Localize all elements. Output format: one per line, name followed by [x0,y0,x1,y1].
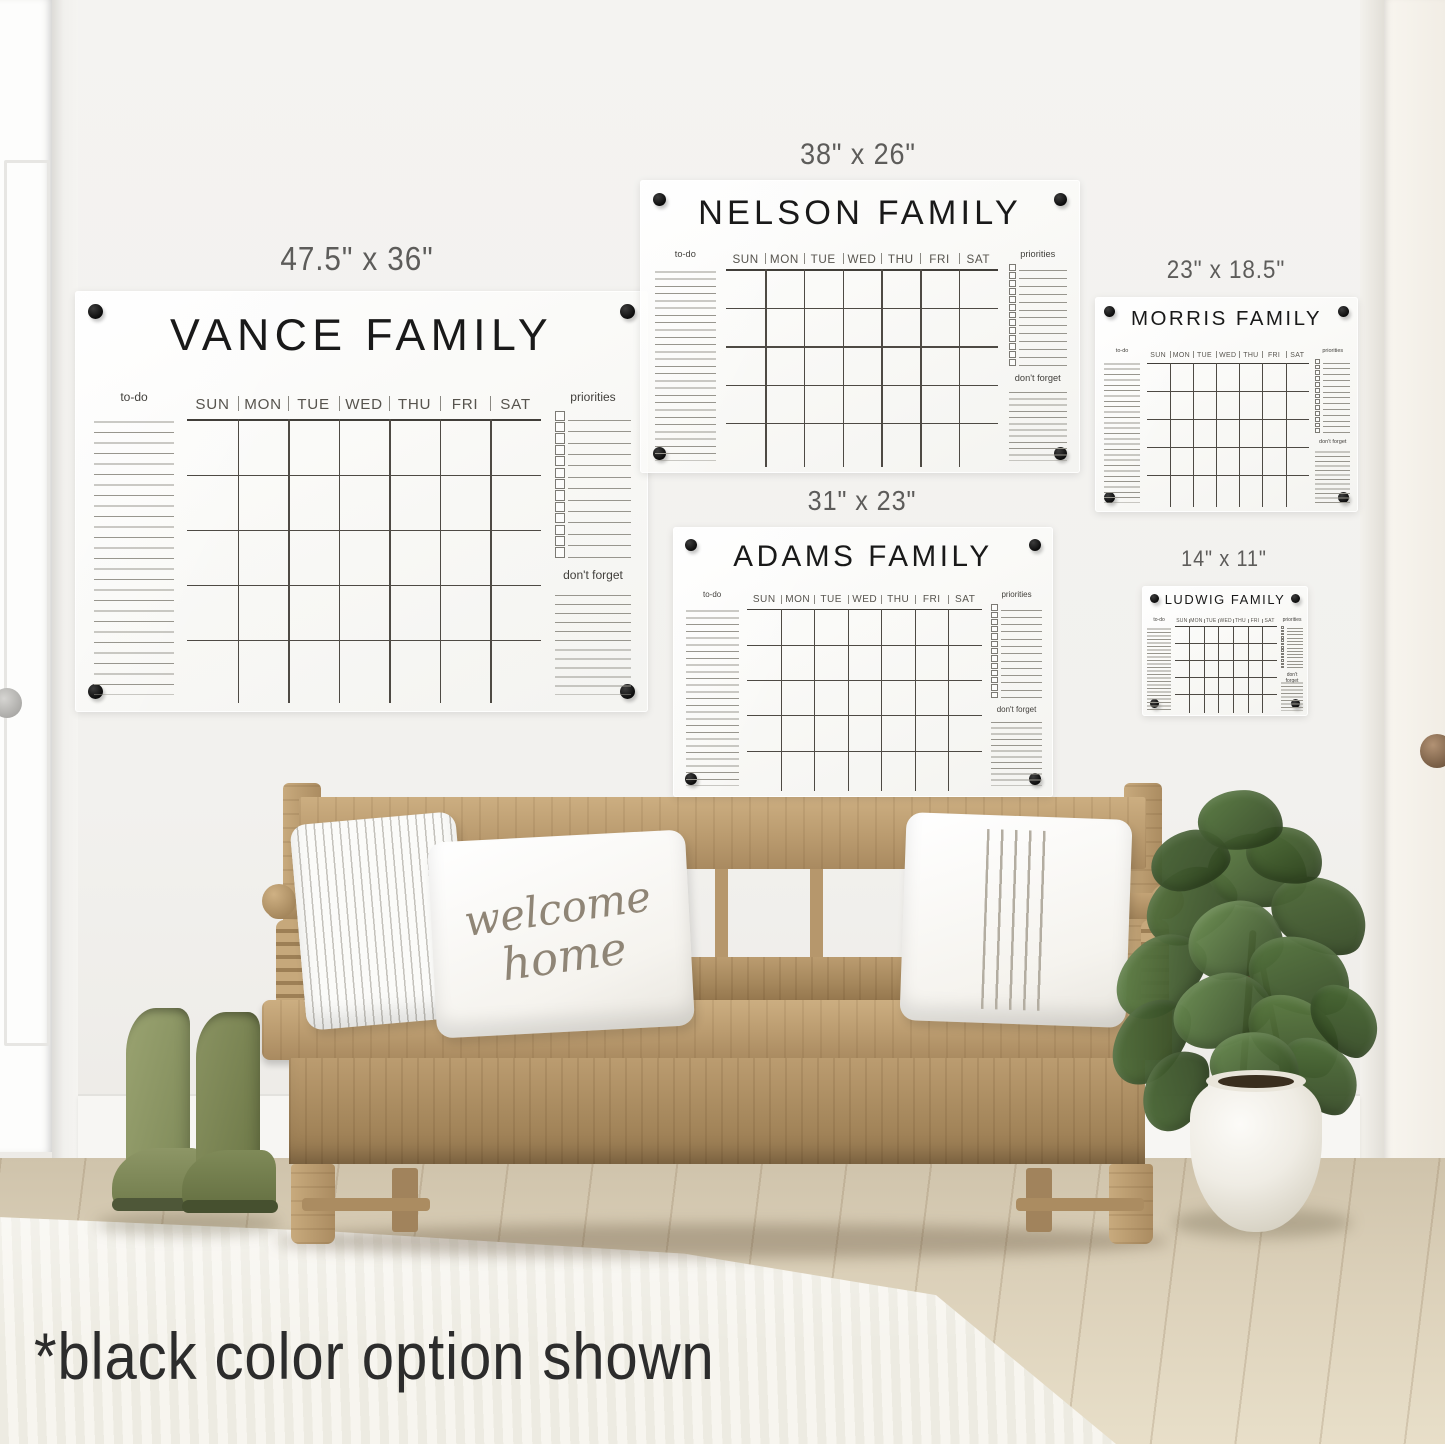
calendar-title: MORRIS FAMILY [1095,307,1358,331]
grid-hline [747,715,981,716]
todo-lines [655,265,717,461]
grid-vline [881,609,882,791]
plant-pot-soil [1218,1075,1294,1088]
priority-checkbox [555,445,565,455]
weekday-separator [920,253,921,263]
weekday-label: SAT [959,253,998,266]
grid-vline [959,269,961,466]
priority-checkbox [555,411,565,421]
priority-row [555,546,631,557]
left-door-panel [4,160,50,1046]
priority-checkbox [555,433,565,443]
grid-hline [726,385,997,387]
weekday-underline [747,609,981,610]
dont-forget-lines [555,587,631,695]
priorities-label: priorities [1009,249,1067,259]
right-door [1384,0,1445,1238]
priority-row [555,489,631,500]
weekday-separator [843,253,844,263]
weekday-header: SUNMONTUEWEDTHUFRISAT [187,390,541,419]
weekday-separator [1262,351,1263,359]
weekday-label: SUN [1175,618,1190,624]
grid-hline [1175,643,1277,644]
priorities-checklist [1281,625,1303,668]
calendar-size-label: 38" x 26" [800,138,916,172]
weekday-label: SUN [726,253,765,266]
weekday-separator [1216,351,1217,359]
priorities-checklist [991,603,1041,698]
priority-row [991,640,1041,647]
priority-row [1009,350,1067,358]
priority-row [1009,342,1067,350]
grid-hline [1147,391,1309,392]
weekday-label: TUE [814,594,848,605]
priority-checkbox [555,479,565,489]
weekday-separator [1233,619,1234,624]
priority-checkbox [1009,335,1016,342]
priority-row [1009,279,1067,287]
boot-left-shaft [126,1008,190,1170]
weekday-label: MON [781,594,815,605]
grid-vline [1233,626,1234,713]
todo-label: to-do [94,390,174,404]
priority-row [555,535,631,546]
weekday-label: FRI [920,253,959,266]
priority-checkbox [1009,280,1016,287]
weekday-label: WED [848,594,882,605]
weekday-label: MON [238,396,289,413]
grid-vline [1204,626,1205,713]
plant-leaf [1196,789,1283,852]
weekday-separator [781,595,782,604]
weekday-label: SUN [1147,352,1170,359]
priority-checkbox [1009,272,1016,279]
grid-vline [1218,626,1219,713]
priority-row [555,501,631,512]
priority-checkbox [1009,359,1016,366]
weekday-label: SUN [747,594,781,605]
priorities-checklist [1315,358,1350,434]
grid-vline [1216,363,1217,508]
weekday-separator [948,595,949,604]
calendar-title: ADAMS FAMILY [673,540,1053,574]
todo-label: to-do [1104,348,1141,354]
weekday-separator [1193,351,1194,359]
grid-vline [920,269,922,466]
todo-column: to-do [655,249,717,461]
priority-row [991,669,1041,676]
priorities-column: prioritiesdon't forget [1315,348,1350,504]
grid-vline [1286,363,1287,508]
bench-arm-knob-left [262,884,296,918]
priority-row [991,625,1041,632]
pillow-center-stripes [981,829,1051,1011]
priority-row [555,409,631,420]
grid-vline [804,269,806,466]
grid-vline [843,269,845,466]
weekday-separator [1248,619,1249,624]
todo-column: to-do [1147,617,1170,711]
priority-row [1009,287,1067,295]
priority-row [991,632,1041,639]
todo-column: to-do [1104,348,1141,504]
priority-row [1009,334,1067,342]
priority-checkbox [555,490,565,500]
priority-row [1009,271,1067,279]
weekday-header: SUNMONTUEWEDTHUFRISAT [747,590,981,609]
weekday-label: WED [1216,352,1239,359]
calendar-size-label: 23" x 18.5" [1167,256,1285,285]
priority-row [991,691,1041,698]
color-option-caption: *black color option shown [34,1318,715,1394]
weekday-label: MON [765,253,804,266]
grid-vline [915,609,916,791]
weekday-underline [187,419,541,421]
weekday-header: SUNMONTUEWEDTHUFRISAT [726,249,997,270]
weekday-separator [288,396,289,411]
weekday-separator [238,396,239,411]
grid-vline [288,419,290,702]
todo-column: to-do [686,590,739,786]
weekday-separator [804,253,805,263]
weekday-underline [726,269,997,271]
weekday-label: MON [1170,352,1193,359]
striped-pillow-right [899,812,1132,1028]
todo-lines [1104,359,1141,504]
weekday-label: THU [1239,352,1262,359]
boot-right-shaft [196,1012,260,1172]
priority-checkbox [1009,312,1016,319]
priority-row [1009,318,1067,326]
weekday-label: SUN [187,396,238,413]
priority-row [1009,263,1067,271]
weekday-label: SAT [1286,352,1309,359]
weekday-separator [1218,619,1219,624]
priority-checkbox [555,422,565,432]
priority-checkbox [1009,304,1016,311]
priority-row [991,683,1041,690]
grid-hline [747,751,981,752]
weekday-separator [848,595,849,604]
weekday-label: WED [843,253,882,266]
todo-column: to-do [94,390,174,695]
todo-lines [94,412,174,696]
grid-vline [1170,363,1171,508]
priorities-column: prioritiesdon't forget [1009,249,1067,461]
calendar-board: ADAMS FAMILYto-doSUNMONTUEWEDTHUFRISATpr… [673,527,1053,797]
dont-forget-lines [1315,448,1350,503]
priority-row [991,654,1041,661]
weekday-label: SAT [948,594,982,605]
grid-vline [238,419,240,702]
rain-boot-right [182,1012,292,1232]
priority-row [555,478,631,489]
priorities-label: priorities [991,590,1041,599]
grid-vline [1239,363,1240,508]
todo-label: to-do [655,249,717,259]
priority-row [555,444,631,455]
weekday-separator [881,595,882,604]
dont-forget-label: don't forget [1315,439,1350,445]
calendar-board: LUDWIG FAMILYto-doSUNMONTUEWEDTHUFRISATp… [1142,586,1308,716]
weekday-label: TUE [288,396,339,413]
weekday-label: TUE [804,253,843,266]
priority-row [1009,358,1067,366]
weekday-separator [389,396,390,411]
calendar-size-label: 31" x 23" [808,485,917,517]
weekday-label: THU [881,253,920,266]
priority-row [991,611,1041,618]
calendar-size-label: 14" x 11" [1181,546,1267,572]
priorities-checklist [1009,263,1067,365]
priority-checkbox [1009,351,1016,358]
grid-hline [1175,694,1277,695]
priority-line [1019,365,1067,366]
grid-hline [726,346,997,348]
priority-row [555,466,631,477]
priority-row [991,618,1041,625]
todo-lines [1147,626,1170,711]
dont-forget-lines [1009,387,1067,462]
priority-checkbox [555,536,565,546]
weekday-separator [1189,619,1190,624]
calendar-board: NELSON FAMILYto-doSUNMONTUEWEDTHUFRISATp… [640,180,1080,473]
weekday-label: FRI [1248,618,1263,624]
weekday-separator [490,396,491,411]
grid-hline [1175,677,1277,678]
grid-vline [1193,363,1194,508]
priority-checkbox [991,692,997,698]
calendar-board: MORRIS FAMILYto-doSUNMONTUEWEDTHUFRISATp… [1095,297,1358,512]
grid-vline [1262,363,1263,508]
priorities-column: prioritiesdon't forget [991,590,1041,786]
weekday-label: TUE [1193,352,1216,359]
dont-forget-label: don't forget [991,705,1041,714]
calendar-title: VANCE FAMILY [75,311,648,361]
priorities-label: priorities [1315,348,1350,354]
priorities-label: priorities [555,390,631,404]
calendar-grid: SUNMONTUEWEDTHUFRISAT [1175,617,1277,711]
grid-vline [948,609,949,791]
priorities-column: prioritiesdon't forget [555,390,631,695]
grid-vline [1262,626,1263,713]
grid-hline [747,680,981,681]
priority-row [1009,311,1067,319]
grid-hline [187,475,541,477]
grid-hline [187,585,541,587]
grid-hline [1147,475,1309,476]
priority-checkbox [1009,327,1016,334]
priority-checkbox [1009,288,1016,295]
bench-apron [289,1058,1145,1164]
bench-stretcher-right [1016,1198,1144,1211]
grid-hline [1147,447,1309,448]
calendar-grid: SUNMONTUEWEDTHUFRISAT [187,390,541,695]
grid-vline [881,269,883,466]
priority-checkbox [1009,264,1016,271]
dont-forget-lines [991,717,1041,786]
weekday-separator [765,253,766,263]
grid-hline [726,308,997,310]
weekday-separator [440,396,441,411]
grid-vline [781,609,782,791]
priority-row [1281,665,1303,668]
priorities-checklist [555,409,631,557]
todo-lines [686,605,739,787]
priority-checkbox [555,502,565,512]
welcome-home-pillow: welcome home [427,829,695,1038]
priority-row [555,455,631,466]
calendar-grid: SUNMONTUEWEDTHUFRISAT [1147,348,1309,504]
weekday-separator [1239,351,1240,359]
entryway-product-photo: welcome home 47.5" x 36"VANCE FAMILYto-d… [0,0,1445,1444]
grid-hline [747,645,981,646]
dont-forget-label: don't forget [1009,373,1067,383]
priority-checkbox [555,456,565,466]
priority-line [1323,432,1350,433]
weekday-label: THU [1233,618,1248,624]
weekday-label: FRI [440,396,491,413]
priority-row [1009,303,1067,311]
priority-line [1001,697,1042,698]
grid-vline [339,419,341,702]
dont-forget-lines [1281,680,1303,711]
dont-forget-label: don't forget [555,568,631,582]
priority-row [991,603,1041,610]
weekday-label: FRI [1262,352,1285,359]
grid-vline [1248,626,1249,713]
todo-label: to-do [686,590,739,599]
priority-row [1009,295,1067,303]
weekday-label: WED [339,396,390,413]
grid-hline [187,530,541,532]
priority-row [991,662,1041,669]
priority-checkbox [1315,428,1320,433]
priority-checkbox [555,525,565,535]
priorities-column: prioritiesdon't forget [1281,617,1303,711]
priority-checkbox [1009,343,1016,350]
todo-label: to-do [1147,617,1170,623]
bench-stretcher-left [302,1198,430,1211]
calendar-grid: SUNMONTUEWEDTHUFRISAT [726,249,997,461]
weekday-label: TUE [1204,618,1219,624]
boot-right-sole [182,1200,278,1213]
weekday-separator [915,595,916,604]
priority-checkbox [555,513,565,523]
calendar-title: NELSON FAMILY [640,194,1080,233]
grid-hline [1147,419,1309,420]
priority-row [1315,427,1350,433]
weekday-header: SUNMONTUEWEDTHUFRISAT [1147,348,1309,363]
calendar-title: LUDWIG FAMILY [1142,592,1308,607]
priority-row [991,676,1041,683]
priority-row [1009,326,1067,334]
grid-vline [765,269,767,466]
weekday-label: SAT [1262,618,1277,624]
grid-vline [814,609,815,791]
weekday-label: THU [389,396,440,413]
priority-line [1287,667,1303,668]
weekday-separator [814,595,815,604]
grid-vline [848,609,849,791]
grid-hline [187,640,541,642]
calendar-board: VANCE FAMILYto-doSUNMONTUEWEDTHUFRISATpr… [75,291,648,712]
welcome-home-script: welcome home [426,868,695,1000]
weekday-separator [1286,351,1287,359]
weekday-label: THU [881,594,915,605]
priority-checkbox [1009,319,1016,326]
weekday-separator [959,253,960,263]
priority-row [555,421,631,432]
weekday-separator [1204,619,1205,624]
priority-checkbox [1009,296,1016,303]
weekday-separator [339,396,340,411]
priority-line [568,557,630,558]
priority-row [555,512,631,523]
priority-checkbox [555,468,565,478]
priority-row [991,647,1041,654]
grid-vline [1189,626,1190,713]
priorities-label: priorities [1281,617,1303,623]
grid-hline [726,423,997,425]
weekday-label: MON [1189,618,1204,624]
calendar-size-label: 47.5" x 36" [280,240,433,278]
weekday-label: WED [1218,618,1233,624]
weekday-label: FRI [915,594,949,605]
priority-row [555,432,631,443]
weekday-separator [1262,619,1263,624]
weekday-separator [1170,351,1171,359]
grid-vline [389,419,391,702]
grid-vline [440,419,442,702]
weekday-underline [1147,363,1309,364]
priority-row [555,523,631,534]
grid-vline [490,419,492,702]
calendar-grid: SUNMONTUEWEDTHUFRISAT [747,590,981,786]
grid-hline [1175,660,1277,661]
priority-checkbox [555,547,565,557]
priority-checkbox [1281,666,1284,669]
weekday-separator [881,253,882,263]
weekday-label: SAT [490,396,541,413]
